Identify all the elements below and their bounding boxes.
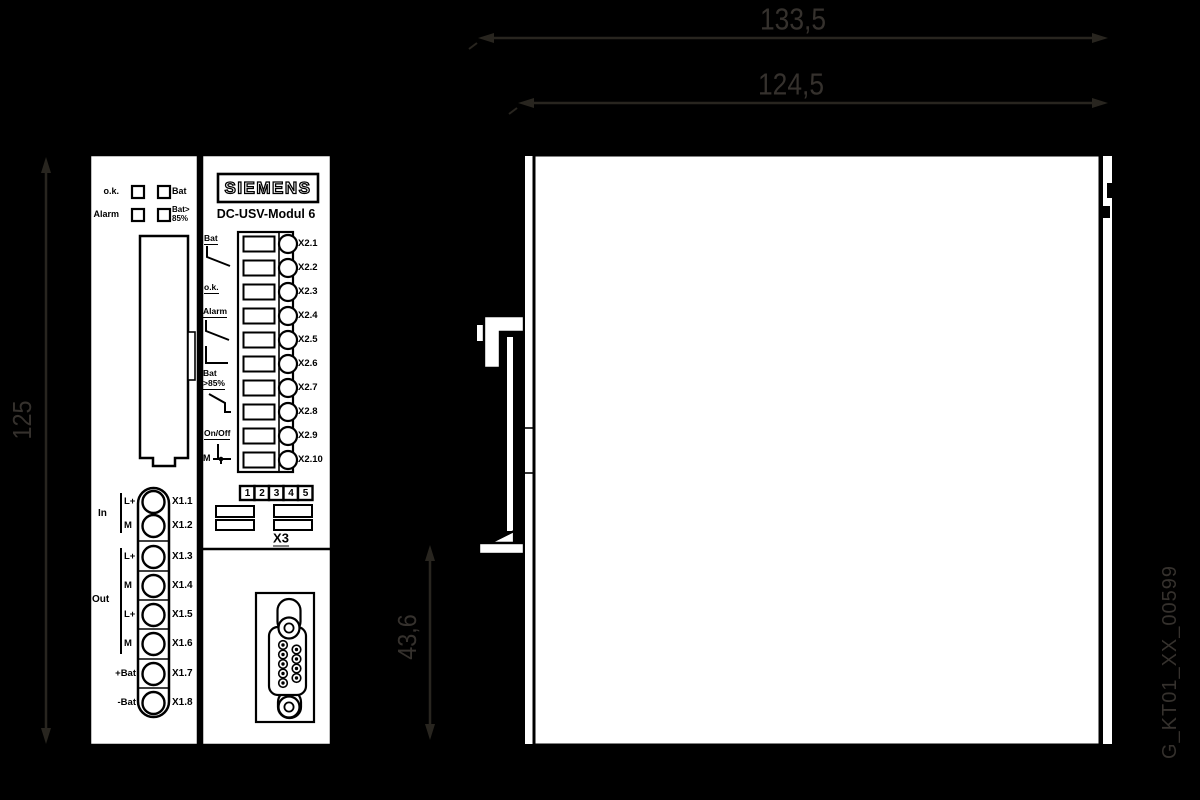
led-label-alarm: Alarm: [84, 210, 119, 219]
x2-signal-bat: Bat: [204, 234, 218, 245]
din-rail-clip: [476, 316, 524, 554]
x2-signal-bat2: Bat: [203, 369, 217, 378]
battery-compartment: [140, 236, 188, 466]
led-bat85: [158, 209, 170, 221]
dim-rail-offset: 43,6: [394, 614, 420, 660]
led-ok: [132, 186, 144, 198]
x1-terminal-label: X1.3: [172, 552, 193, 562]
x1-pin-label: M: [124, 521, 132, 531]
x1-4-terminal: [143, 575, 165, 597]
x1-terminal-label: X1.2: [172, 521, 193, 531]
x1-8-terminal: [143, 692, 165, 714]
dsub-connector: [256, 593, 314, 722]
x2-signal-onoff: On/Off: [204, 429, 230, 440]
x2-terminal-label: X2.8: [298, 407, 318, 417]
led-alarm: [132, 209, 144, 221]
x2-terminal-label: X2.9: [298, 431, 318, 441]
x1-1-terminal: [143, 491, 165, 513]
x1-pin-label: -Bat: [96, 698, 136, 708]
x2-signal-alarm: Alarm: [203, 307, 227, 318]
x2-terminal-label: X2.10: [298, 455, 323, 465]
x1-pin-label: L+: [124, 610, 135, 620]
dip-number: 1: [240, 489, 255, 499]
dip-number: 2: [255, 489, 270, 499]
x1-terminal-label: X1.7: [172, 669, 193, 679]
x1-pin-label: M: [124, 639, 132, 649]
technical-drawing: 133,5 124,5 125 43,6 G_KT01_XX_00599 o.k…: [0, 0, 1200, 800]
front-strip-notch-2: [1102, 206, 1110, 218]
x1-terminal-label: X1.8: [172, 698, 193, 708]
x1-5-terminal: [143, 604, 165, 626]
side-body: [534, 155, 1100, 745]
dim-body-width: 124,5: [758, 69, 824, 100]
x1-2-terminal: [143, 515, 165, 537]
x1-terminal-label: X1.4: [172, 581, 193, 591]
x2-signal-bat85: >85%: [203, 379, 225, 390]
led-label-bat: Bat: [172, 187, 187, 196]
x2-terminal-label: X2.5: [298, 335, 318, 345]
x2-terminal-label: X2.7: [298, 383, 318, 393]
m-node-dot: [219, 457, 224, 462]
x1-group-out: Out: [92, 595, 109, 605]
front-strip-notch-1: [1107, 183, 1112, 198]
x1-3-terminal: [143, 546, 165, 568]
x2-signal-ok: o.k.: [204, 283, 219, 294]
x1-7-terminal: [143, 663, 165, 685]
led-label-bat85-line2: 85%: [172, 215, 188, 223]
dip-number: 3: [269, 489, 284, 499]
led-label-bat85-line1: Bat>: [172, 206, 190, 214]
dim-overall-width: 133,5: [760, 4, 826, 35]
side-front-strip: [1102, 155, 1113, 745]
x1-terminal-label: X1.6: [172, 639, 193, 649]
brand-logo-text: SIEMENS: [224, 180, 311, 197]
x1-pin-label: L+: [124, 497, 135, 507]
drawing-linework: [0, 0, 1200, 800]
led-bat: [158, 186, 170, 198]
x1-pin-label: L+: [124, 552, 135, 562]
x1-terminal-label: X1.1: [172, 497, 193, 507]
dip-number: 5: [298, 489, 313, 499]
x1-pin-label: +Bat: [96, 669, 136, 679]
compartment-latch: [188, 332, 195, 380]
x3-label: X3: [273, 532, 289, 547]
x2-terminal-label: X2.2: [298, 263, 318, 273]
x1-pin-label: M: [124, 581, 132, 591]
x2-signal-m: M: [203, 454, 211, 463]
x1-terminal-label: X1.5: [172, 610, 193, 620]
drawing-number: G_KT01_XX_00599: [1160, 565, 1180, 759]
x1-6-terminal: [143, 633, 165, 655]
side-view: [476, 155, 1113, 745]
dip-number: 4: [284, 489, 299, 499]
x2-terminal-label: X2.6: [298, 359, 318, 369]
x2-terminal-label: X2.3: [298, 287, 318, 297]
x2-terminal-label: X2.4: [298, 311, 318, 321]
model-name: DC-USV-Modul 6: [217, 208, 316, 221]
dim-height: 125: [9, 400, 35, 439]
led-label-ok: o.k.: [89, 187, 119, 196]
x1-group-in: In: [98, 509, 107, 519]
x2-terminal-label: X2.1: [298, 239, 318, 249]
